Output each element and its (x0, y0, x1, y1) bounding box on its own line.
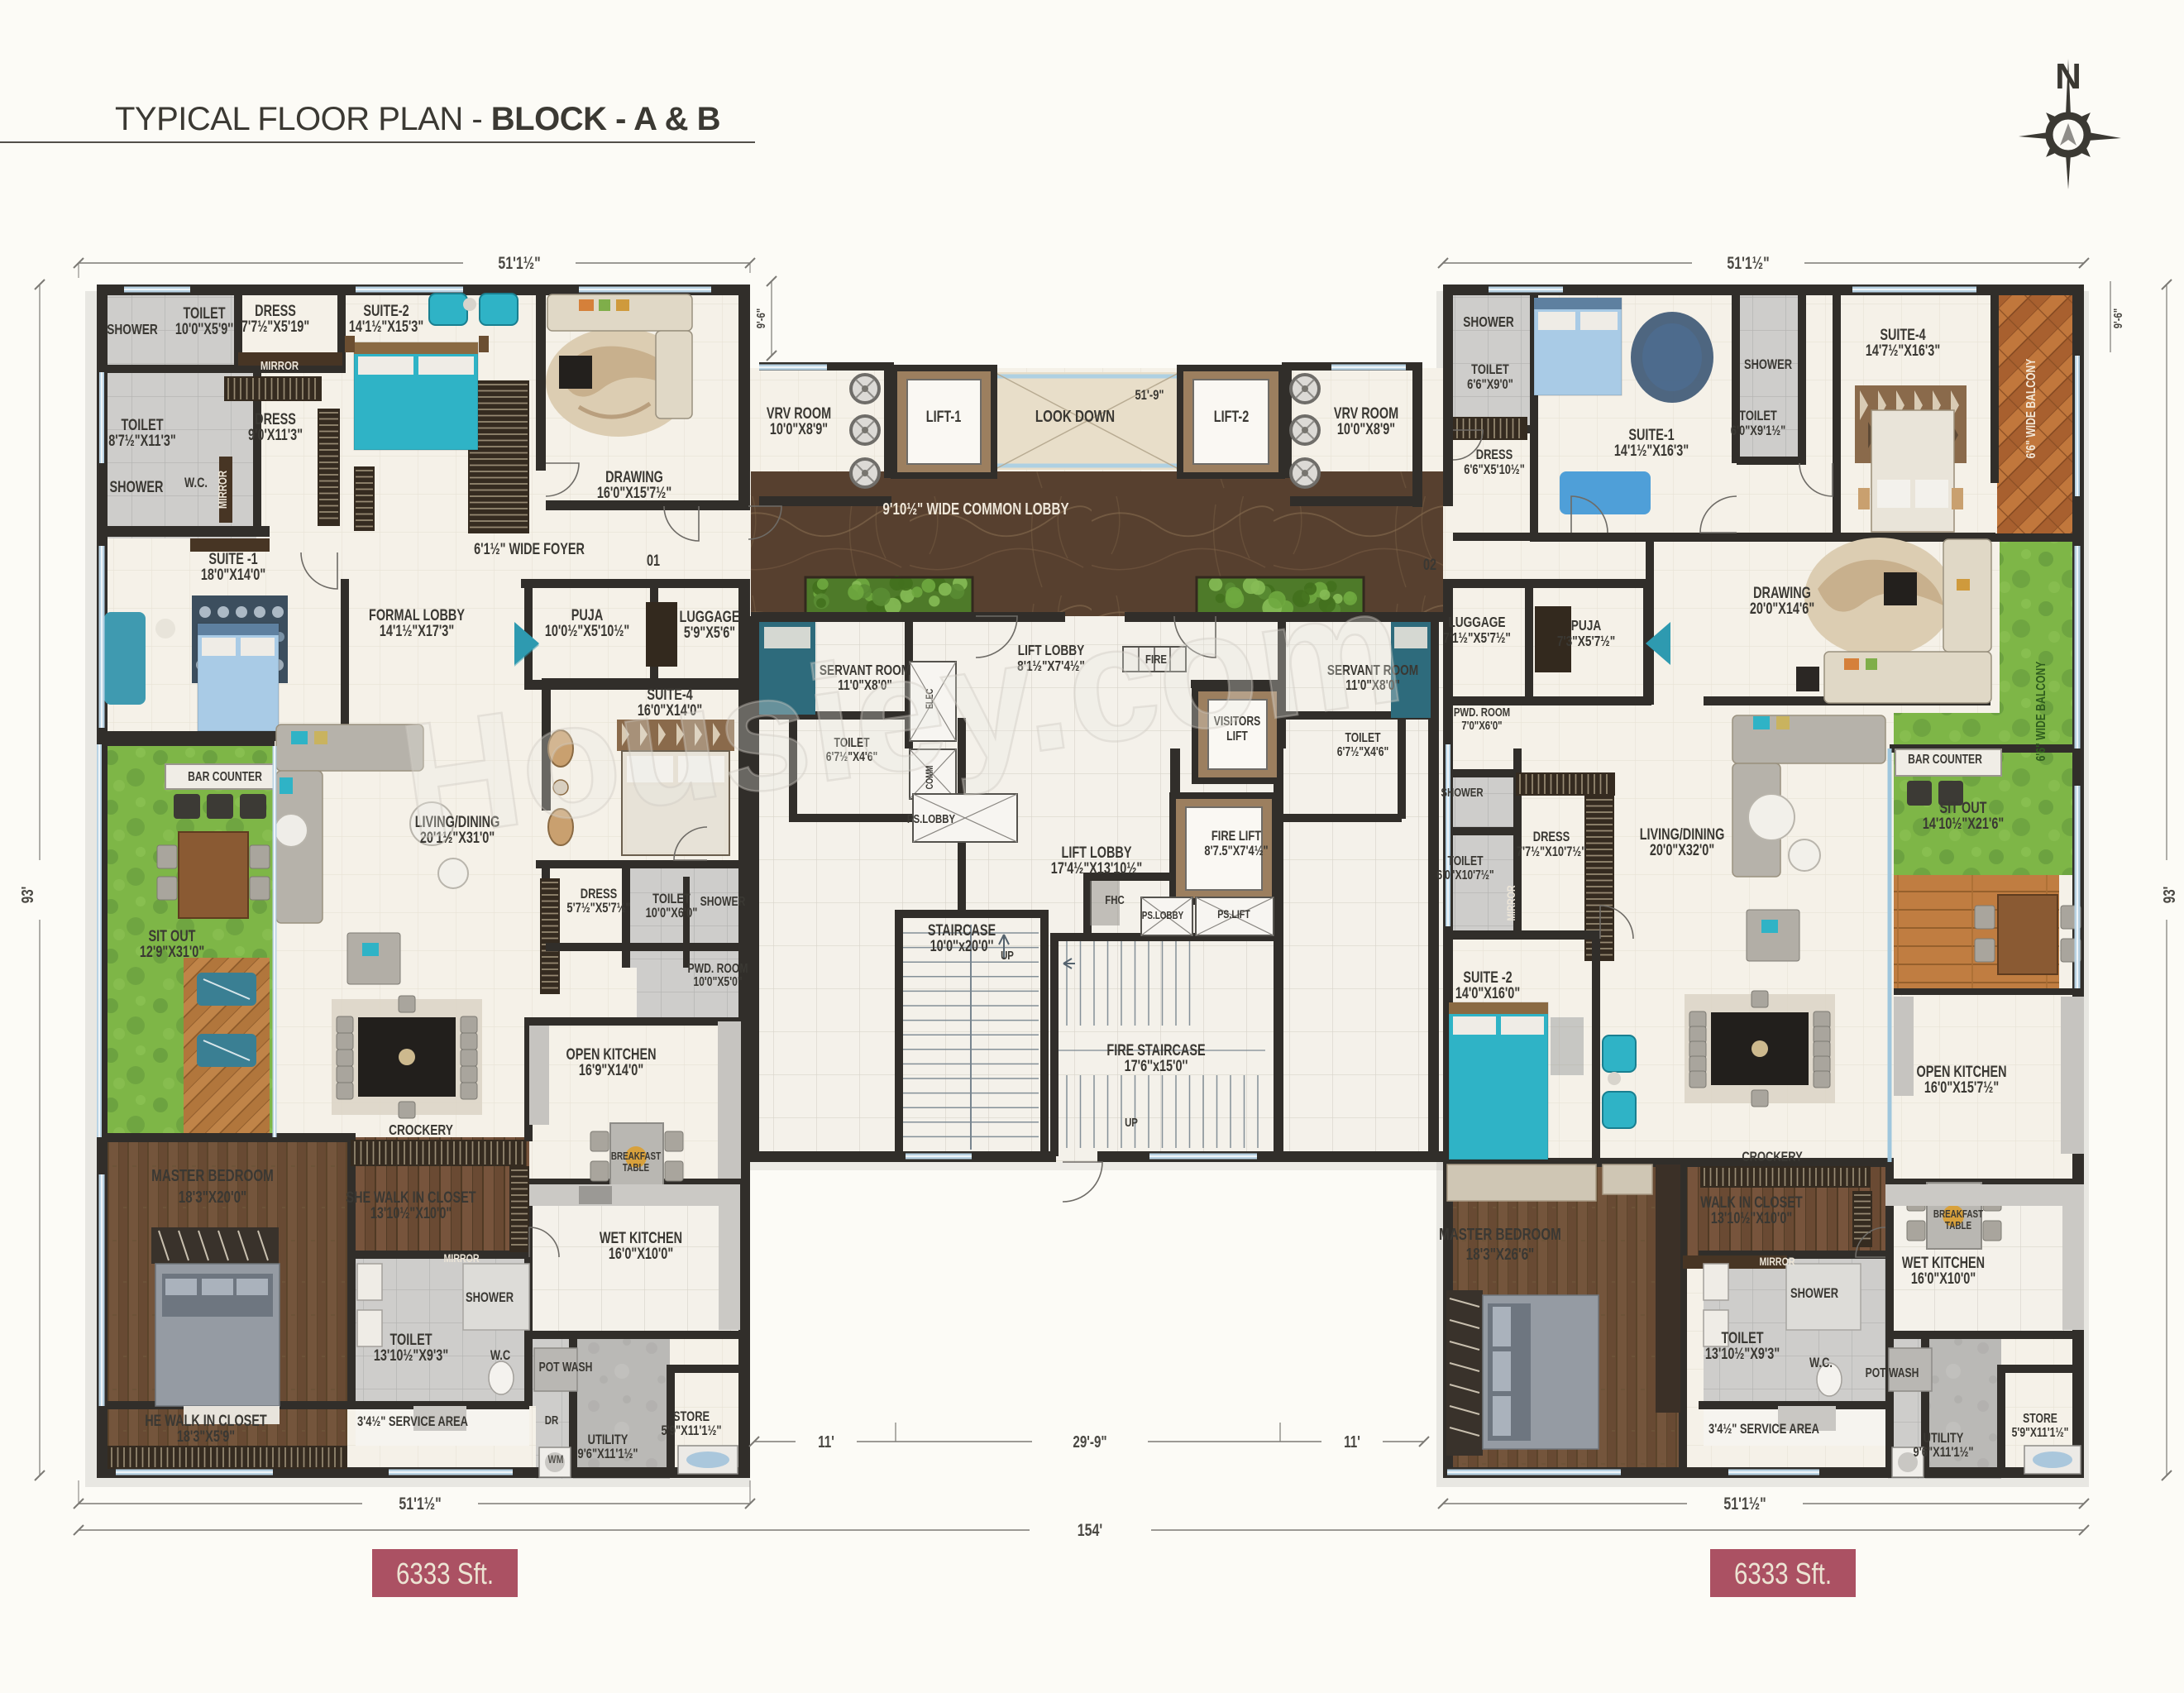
svg-text:7'1½"X5'7½": 7'1½"X5'7½" (1443, 630, 1511, 646)
svg-text:8'7.5"X7'4½": 8'7.5"X7'4½" (1204, 843, 1268, 858)
svg-text:14'0"X16'0": 14'0"X16'0" (1455, 984, 1520, 1002)
svg-text:14'1½"X16'3": 14'1½"X16'3" (1614, 442, 1689, 459)
svg-text:SHOWER: SHOWER (107, 322, 158, 337)
svg-text:14'7½"X16'3": 14'7½"X16'3" (1866, 342, 1940, 359)
svg-text:01: 01 (647, 552, 660, 569)
svg-text:14'1½"X15'3": 14'1½"X15'3" (349, 318, 423, 335)
svg-text:PS.LOBBY: PS.LOBBY (907, 811, 955, 825)
svg-text:LIFT-2: LIFT-2 (1214, 408, 1249, 425)
svg-text:DRESS: DRESS (1476, 447, 1513, 462)
svg-text:SHOWER: SHOWER (700, 894, 746, 909)
svg-text:PWD. ROOM: PWD. ROOM (1454, 705, 1510, 719)
svg-text:17'4½"X13'10½": 17'4½"X13'10½" (1051, 859, 1142, 877)
svg-text:10'0"X8'9": 10'0"X8'9" (770, 420, 828, 438)
svg-text:10'0"X6'0": 10'0"X6'0" (646, 905, 698, 921)
svg-text:6'6"X5'10½": 6'6"X5'10½" (1464, 462, 1525, 477)
svg-text:9'-6": 9'-6" (2110, 308, 2124, 329)
svg-text:DRESS: DRESS (1533, 829, 1570, 844)
svg-text:TOILET: TOILET (1471, 361, 1509, 377)
svg-text:10'0''x20'0'': 10'0''x20'0'' (930, 937, 994, 954)
svg-text:STORE: STORE (2023, 1411, 2057, 1426)
svg-text:MIRROR: MIRROR (443, 1252, 479, 1265)
svg-text:6'0"X9'1½": 6'0"X9'1½" (1731, 423, 1785, 438)
svg-text:BREAKFAST: BREAKFAST (1933, 1209, 1983, 1221)
svg-text:154': 154' (1078, 1520, 1102, 1540)
svg-text:WM: WM (548, 1453, 564, 1466)
svg-text:7'0"X6'0": 7'0"X6'0" (1461, 718, 1502, 732)
svg-text:LUGGAGE: LUGGAGE (1448, 615, 1505, 630)
svg-text:W.C.: W.C. (1809, 1355, 1833, 1370)
svg-text:PS.LOBBY: PS.LOBBY (1142, 911, 1184, 922)
svg-text:18'3"X5'9": 18'3"X5'9" (177, 1428, 235, 1445)
svg-text:PUJA: PUJA (1571, 618, 1602, 634)
svg-text:SHOWER: SHOWER (1463, 314, 1514, 330)
svg-text:9'0'X11'3": 9'0'X11'3" (248, 426, 303, 443)
svg-text:13'10½"X9'3": 13'10½"X9'3" (1705, 1345, 1780, 1362)
svg-text:11': 11' (1344, 1432, 1360, 1451)
svg-text:18'3"X26'6": 18'3"X26'6" (1466, 1245, 1534, 1264)
svg-text:6'0"X10'7½": 6'0"X10'7½" (1436, 868, 1493, 882)
svg-text:10'0"X8'9": 10'0"X8'9" (1337, 420, 1395, 438)
svg-text:TOILET: TOILET (1448, 854, 1484, 868)
svg-text:51'-9": 51'-9" (1135, 387, 1164, 403)
svg-text:9'6"X11'1½": 9'6"X11'1½" (578, 1446, 638, 1461)
svg-text:6'1½" WIDE FOYER: 6'1½" WIDE FOYER (474, 540, 585, 557)
svg-text:51'1½": 51'1½" (1727, 253, 1769, 273)
svg-text:SHOWER: SHOWER (1790, 1285, 1838, 1301)
svg-text:20'0"X14'6": 20'0"X14'6" (1750, 600, 1814, 617)
svg-text:9'10½" WIDE COMMON LOBBY: 9'10½" WIDE COMMON LOBBY (882, 500, 1068, 519)
svg-text:LOOK DOWN: LOOK DOWN (1035, 407, 1115, 426)
svg-text:7'7½"X5'19": 7'7½"X5'19" (241, 318, 309, 335)
svg-text:6'6" WIDE BALCONY: 6'6" WIDE BALCONY (2024, 358, 2038, 458)
svg-text:6'6" WIDE BALCONY: 6'6" WIDE BALCONY (2033, 661, 2048, 761)
svg-text:14'1½"X17'3": 14'1½"X17'3" (380, 622, 454, 639)
svg-text:9'6"X11'1½": 9'6"X11'1½" (1914, 1444, 1974, 1460)
svg-text:6'6"X9'0": 6'6"X9'0" (1467, 376, 1513, 392)
svg-text:10'0''X5'9'': 10'0''X5'9'' (175, 320, 233, 337)
svg-text:18'0"X14'0": 18'0"X14'0" (201, 566, 265, 583)
svg-text:3'4½" SERVICE AREA: 3'4½" SERVICE AREA (357, 1413, 468, 1429)
svg-text:SHOWER: SHOWER (1441, 785, 1484, 799)
svg-text:11': 11' (818, 1432, 834, 1451)
svg-text:13'10½"X10'0": 13'10½"X10'0" (1711, 1209, 1792, 1227)
svg-text:6'7½"X4'6": 6'7½"X4'6" (1337, 744, 1389, 759)
svg-text:3'4½" SERVICE AREA: 3'4½" SERVICE AREA (1708, 1421, 1819, 1437)
svg-text:CROCKERY: CROCKERY (389, 1122, 453, 1138)
svg-text:17'6''x15'0'': 17'6''x15'0'' (1125, 1057, 1188, 1074)
svg-text:BAR COUNTER: BAR COUNTER (188, 769, 262, 784)
svg-text:LIFT-1: LIFT-1 (926, 408, 961, 425)
svg-text:W.C: W.C (490, 1347, 510, 1363)
svg-text:5'9"X5'6": 5'9"X5'6" (684, 624, 735, 641)
svg-text:16'0"X15'7½": 16'0"X15'7½" (1924, 1078, 1999, 1096)
svg-text:POT WASH: POT WASH (539, 1360, 593, 1375)
svg-text:DR: DR (545, 1413, 559, 1427)
svg-text:MIRROR: MIRROR (1759, 1255, 1795, 1269)
svg-text:20'0"X32'0": 20'0"X32'0" (1650, 841, 1714, 858)
svg-text:TYPICAL FLOOR PLAN - BLOCK - A: TYPICAL FLOOR PLAN - BLOCK - A & B (115, 101, 720, 137)
svg-text:BAR COUNTER: BAR COUNTER (1908, 752, 1982, 767)
svg-text:16'0"X10'0": 16'0"X10'0" (609, 1245, 673, 1262)
svg-text:5'9"X11'1½": 5'9"X11'1½" (2012, 1425, 2069, 1440)
svg-text:18'3"X20'0": 18'3"X20'0" (179, 1188, 246, 1207)
svg-text:93': 93' (18, 887, 37, 904)
svg-text:7'3"X5'7½": 7'3"X5'7½" (1557, 634, 1615, 649)
svg-text:6333 Sft.: 6333 Sft. (396, 1557, 494, 1590)
svg-text:10'0½"X5'10½": 10'0½"X5'10½" (545, 622, 629, 639)
svg-text:TOILET: TOILET (1739, 408, 1777, 423)
svg-text:MASTER BEDROOM: MASTER BEDROOM (151, 1166, 274, 1185)
svg-text:5'9"X11'1½": 5'9"X11'1½" (662, 1423, 722, 1438)
svg-text:16'0"X10'0": 16'0"X10'0" (1911, 1270, 1976, 1287)
svg-text:BREAKFAST: BREAKFAST (611, 1151, 661, 1163)
svg-text:FHC: FHC (1105, 892, 1125, 906)
svg-text:FIRE LIFT: FIRE LIFT (1211, 828, 1262, 844)
svg-text:8'7½"X11'3": 8'7½"X11'3" (108, 432, 176, 449)
svg-text:02: 02 (1423, 556, 1436, 573)
svg-text:UP: UP (1001, 948, 1014, 962)
svg-text:UP: UP (1125, 1115, 1138, 1129)
svg-text:MIRROR: MIRROR (215, 471, 229, 509)
svg-text:13'10½"X9'3": 13'10½"X9'3" (374, 1346, 448, 1364)
svg-text:16'9"X14'0": 16'9"X14'0" (579, 1061, 643, 1078)
svg-text:MIRROR: MIRROR (260, 358, 299, 372)
svg-text:29'-9": 29'-9" (1073, 1432, 1106, 1451)
svg-text:CROCKERY: CROCKERY (1742, 1149, 1802, 1165)
svg-text:TABLE: TABLE (1945, 1221, 1971, 1232)
svg-text:10'0"X5'0": 10'0"X5'0" (693, 974, 742, 989)
svg-text:14'10½"X21'6": 14'10½"X21'6" (1923, 815, 2004, 832)
svg-text:POT WASH: POT WASH (1866, 1365, 1919, 1380)
svg-text:SHOWER: SHOWER (466, 1289, 514, 1305)
svg-text:51'1½": 51'1½" (1723, 1494, 1766, 1514)
svg-text:MIRROR: MIRROR (1505, 885, 1518, 921)
svg-text:51'1½": 51'1½" (498, 253, 540, 273)
svg-text:TABLE: TABLE (623, 1163, 649, 1174)
svg-text:7'7½"X10'7½": 7'7½"X10'7½" (1517, 844, 1586, 859)
svg-text:6333 Sft.: 6333 Sft. (1734, 1557, 1832, 1590)
svg-text:12'9"X31'0": 12'9"X31'0" (140, 943, 204, 960)
svg-text:9'-6": 9'-6" (753, 308, 767, 329)
svg-text:MASTER BEDROOM: MASTER BEDROOM (1439, 1225, 1561, 1244)
svg-text:W.C.: W.C. (184, 475, 208, 490)
svg-text:13'10½"X10'0": 13'10½"X10'0" (370, 1204, 452, 1222)
svg-text:SHOWER: SHOWER (110, 478, 164, 495)
svg-text:51'1½": 51'1½" (399, 1494, 441, 1514)
svg-text:16'0"X15'7½": 16'0"X15'7½" (597, 484, 671, 501)
svg-text:SHOWER: SHOWER (1744, 356, 1792, 372)
svg-text:PS.LIFT: PS.LIFT (1217, 908, 1250, 921)
svg-text:5'7½"X5'7½": 5'7½"X5'7½" (566, 900, 630, 916)
svg-text:93': 93' (2160, 887, 2179, 904)
